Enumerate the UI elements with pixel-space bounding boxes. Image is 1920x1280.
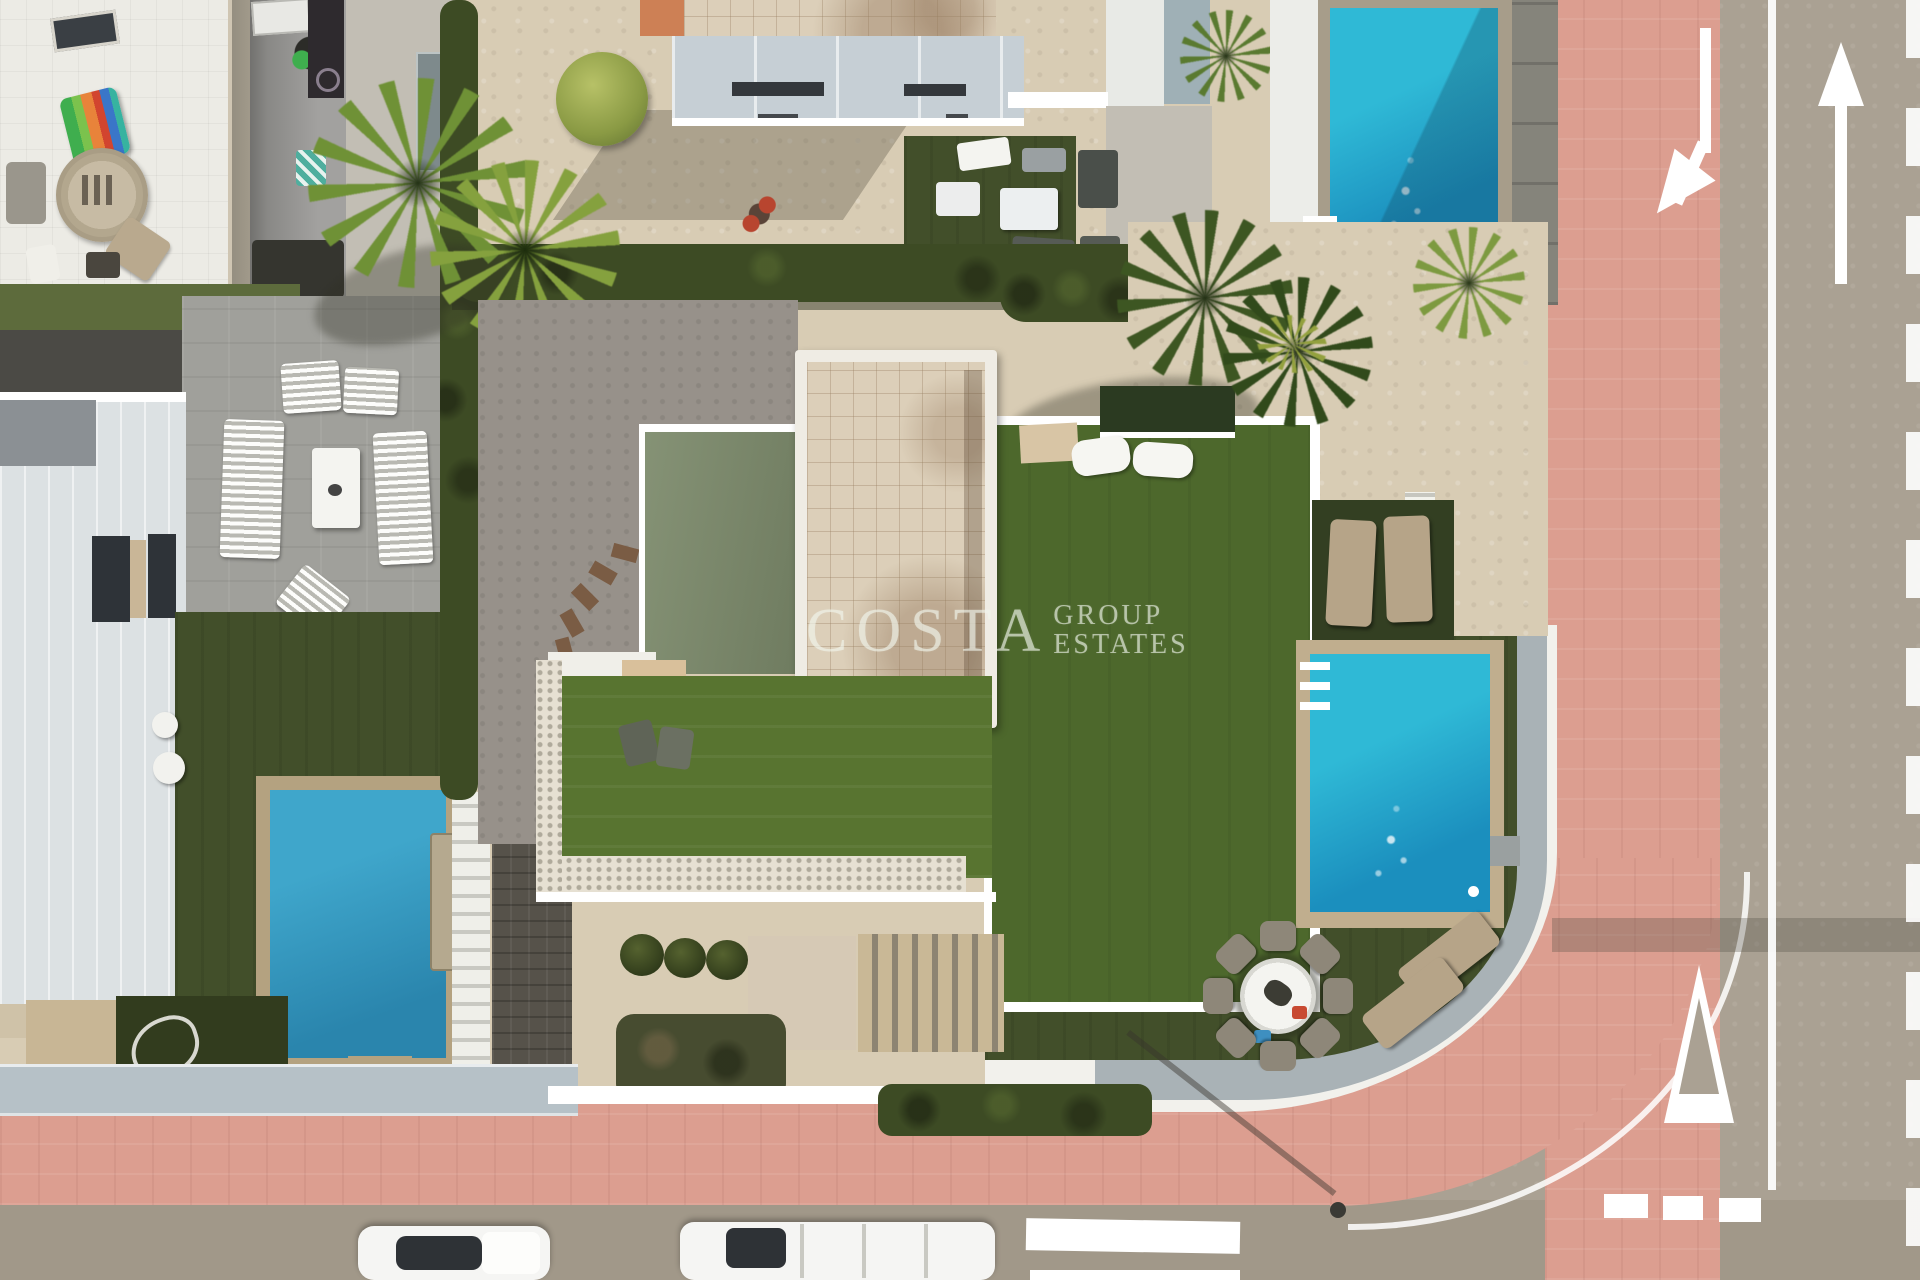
sun-lounger-flat-2 <box>343 367 399 416</box>
car-van-seam-3 <box>924 1224 928 1278</box>
terrace-chair-small <box>25 244 61 285</box>
tiled-roof-top-center <box>684 0 996 40</box>
wicker-table-pattern <box>82 175 112 205</box>
shrub-2 <box>664 938 706 978</box>
road-center-line <box>1768 0 1776 1190</box>
building-blue-band <box>672 36 1024 120</box>
neighbour-window-2 <box>148 534 176 618</box>
car-van-seam-2 <box>862 1224 866 1278</box>
straight-arrow-stem <box>1835 104 1847 284</box>
shrub-3 <box>706 940 748 980</box>
neighbour-roof-patch <box>0 400 96 466</box>
round-table-small-1 <box>152 712 178 738</box>
window-slit-2 <box>904 84 966 96</box>
stop-dash-1 <box>1604 1194 1648 1218</box>
road-dashed-edge-line <box>1906 0 1920 1280</box>
upper-lounger-1 <box>1325 519 1376 627</box>
upper-lounger-2 <box>1383 515 1433 623</box>
outdoor-table-white <box>1000 188 1058 230</box>
patio-table-decor <box>328 484 342 496</box>
left-turn-arrow-stem <box>1700 28 1711 153</box>
villa-wall-line-left <box>536 892 996 902</box>
palm-bright-topright <box>1413 227 1525 339</box>
dining-chair-7 <box>1203 978 1233 1014</box>
watermark-secondary: GROUP ESTATES <box>1053 602 1188 659</box>
crosswalk-bar-1 <box>1026 1218 1241 1254</box>
cushion-gray <box>1022 148 1066 172</box>
dining-chair-3 <box>1323 978 1353 1014</box>
pergola-green <box>1100 386 1235 434</box>
villa-pool-ladder <box>1300 662 1330 710</box>
car-hatchback-windshield <box>396 1236 482 1270</box>
pebble-border-bottom <box>536 856 966 896</box>
dining-chair-1 <box>1260 921 1296 951</box>
window-slit-1 <box>732 82 824 96</box>
villa-lawn <box>552 676 992 878</box>
roof-lounger-white-2 <box>1132 441 1194 479</box>
watermark: COSTA GROUP ESTATES <box>806 600 1189 662</box>
beige-wall-bottom-left <box>26 1000 120 1070</box>
cushion-white-2 <box>936 182 980 216</box>
watermark-primary: COSTA <box>806 600 1049 662</box>
car-van-seam-1 <box>800 1224 804 1278</box>
watermark-secondary-bottom: ESTATES <box>1053 631 1188 660</box>
neighbour-window-1 <box>92 536 130 622</box>
dark-lounge-right <box>1078 150 1118 208</box>
villa-gravel-top <box>478 300 798 435</box>
palm-small-roof <box>1180 10 1272 102</box>
rail-band <box>1008 92 1108 108</box>
aerial-photo: COSTA GROUP ESTATES <box>0 0 1920 1280</box>
building-parapet <box>672 118 1024 126</box>
red-bag <box>1292 1006 1307 1019</box>
sun-lounger-long-2 <box>373 431 434 566</box>
stop-dash-3 <box>1719 1198 1761 1222</box>
round-table-small-2 <box>153 752 185 784</box>
door-emblem <box>316 68 340 92</box>
straight-arrow-head <box>1818 42 1864 106</box>
sun-lounger-flat-1 <box>280 360 341 414</box>
villa-pool-light <box>1468 886 1479 897</box>
orange-roof-patch <box>640 0 686 36</box>
lawn-lounger-2 <box>655 726 694 770</box>
roof-pad-beige <box>1019 423 1079 464</box>
sun-lounger-long-1 <box>220 419 285 559</box>
car-van-windshield <box>726 1228 786 1268</box>
terrace-chair-left <box>6 162 46 224</box>
road-dark-band <box>1552 918 1920 952</box>
neighbour-window-sill <box>130 540 146 618</box>
street-lamp <box>1330 1202 1346 1218</box>
round-bush <box>556 52 648 146</box>
shrub-1 <box>620 934 664 976</box>
terrace-planter <box>86 252 120 278</box>
pool-side-pad <box>1490 836 1520 866</box>
villa-street-wall <box>548 1086 894 1104</box>
villa-pool-water <box>1310 654 1490 912</box>
car-hatchback-roof <box>482 1232 540 1274</box>
hedge-street <box>878 1084 1152 1136</box>
watermark-secondary-top: GROUP <box>1053 602 1188 631</box>
building-white-right <box>1106 0 1164 112</box>
walkway-band <box>0 1064 578 1116</box>
sage-roof <box>645 432 795 674</box>
stop-dash-2 <box>1663 1196 1703 1220</box>
crosswalk-bar-2 <box>1030 1270 1240 1280</box>
slat-deck <box>858 934 1004 1052</box>
neighbour-pool-water <box>270 790 446 1058</box>
pebble-border-left <box>536 660 562 896</box>
dining-chair-5 <box>1260 1041 1296 1071</box>
